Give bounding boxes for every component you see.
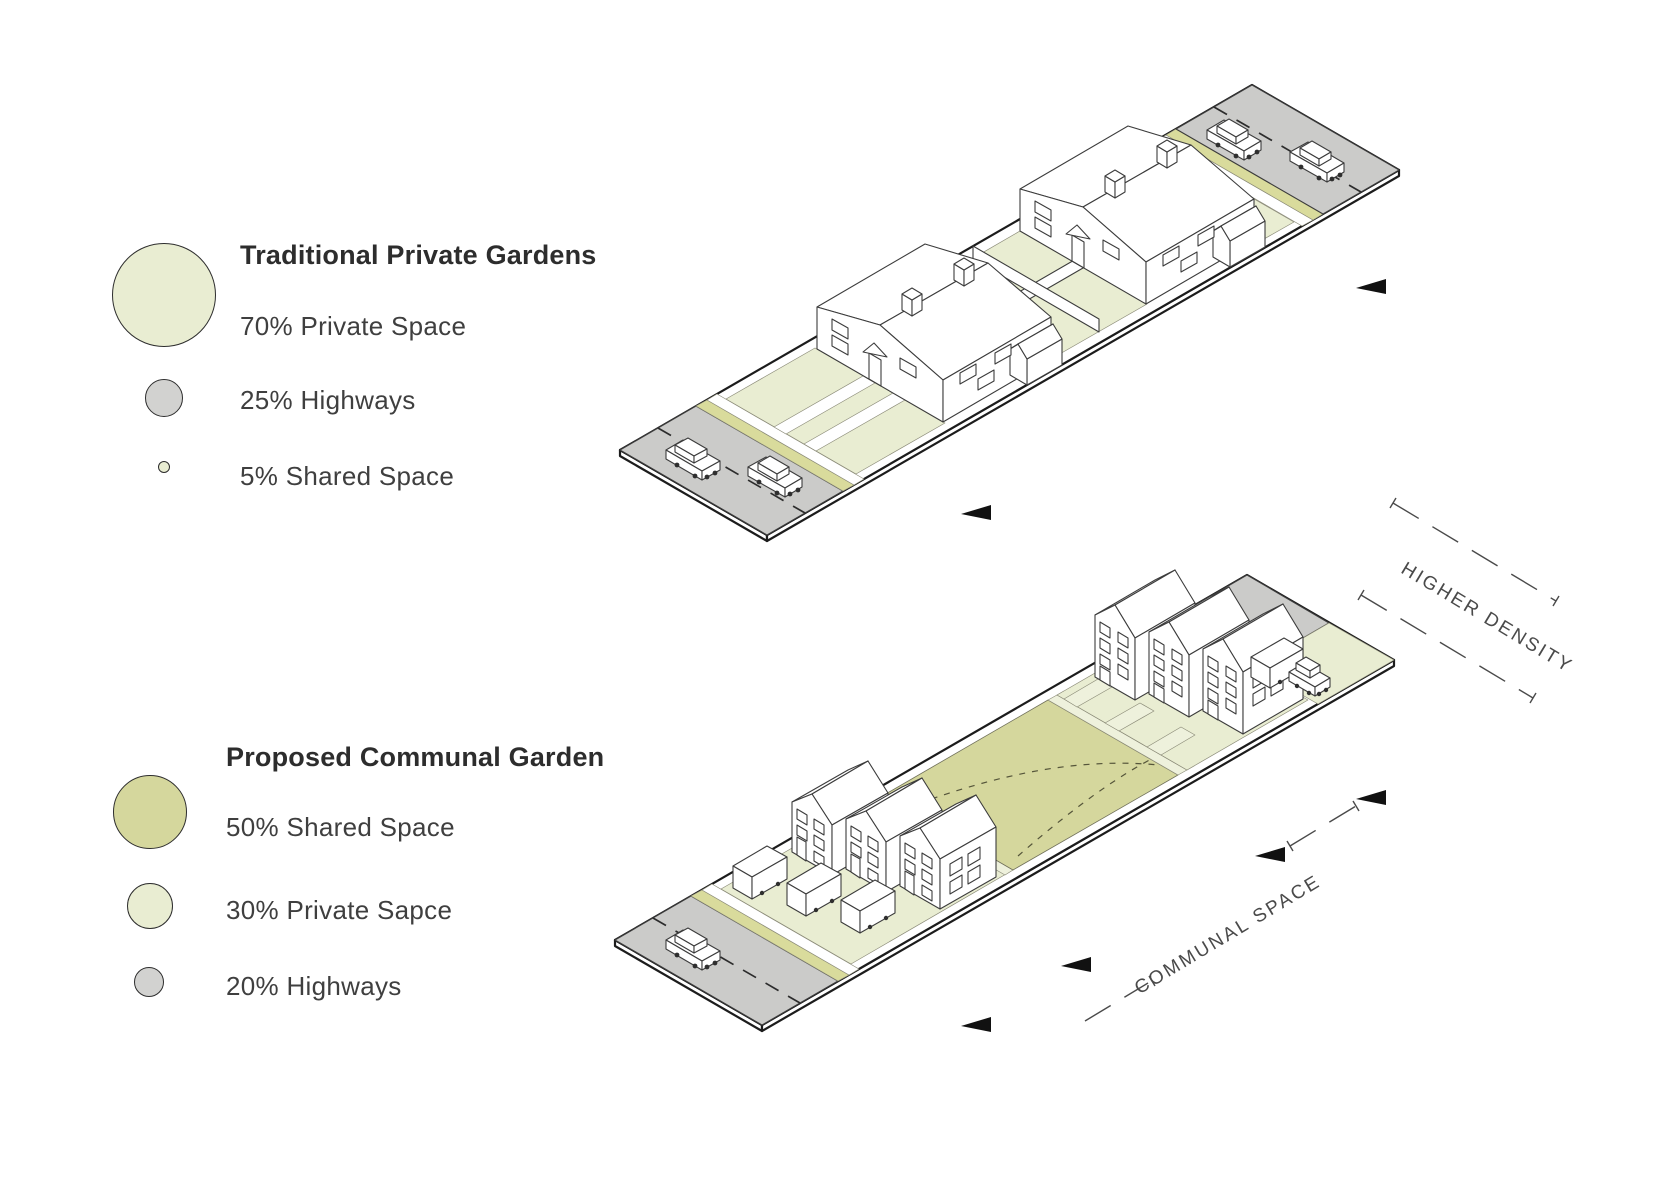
direction-arrow [1255, 847, 1285, 862]
communal-space-label: COMMUNAL SPACE [1085, 801, 1359, 1021]
proposed-diagram: HIGHER DENSITY COMMUNAL SPACE [615, 498, 1577, 1032]
direction-arrow [1356, 790, 1386, 805]
higher-density-label: HIGHER DENSITY [1358, 498, 1577, 703]
direction-arrow [961, 1017, 991, 1032]
direction-arrow [1356, 279, 1386, 294]
communal-space-text: COMMUNAL SPACE [1131, 871, 1325, 999]
diagrams-canvas: HIGHER DENSITY COMMUNAL SPACE [0, 0, 1680, 1200]
direction-arrow [1061, 957, 1091, 972]
direction-arrow [961, 505, 991, 520]
higher-density-text: HIGHER DENSITY [1397, 558, 1576, 677]
traditional-diagram [620, 85, 1399, 541]
